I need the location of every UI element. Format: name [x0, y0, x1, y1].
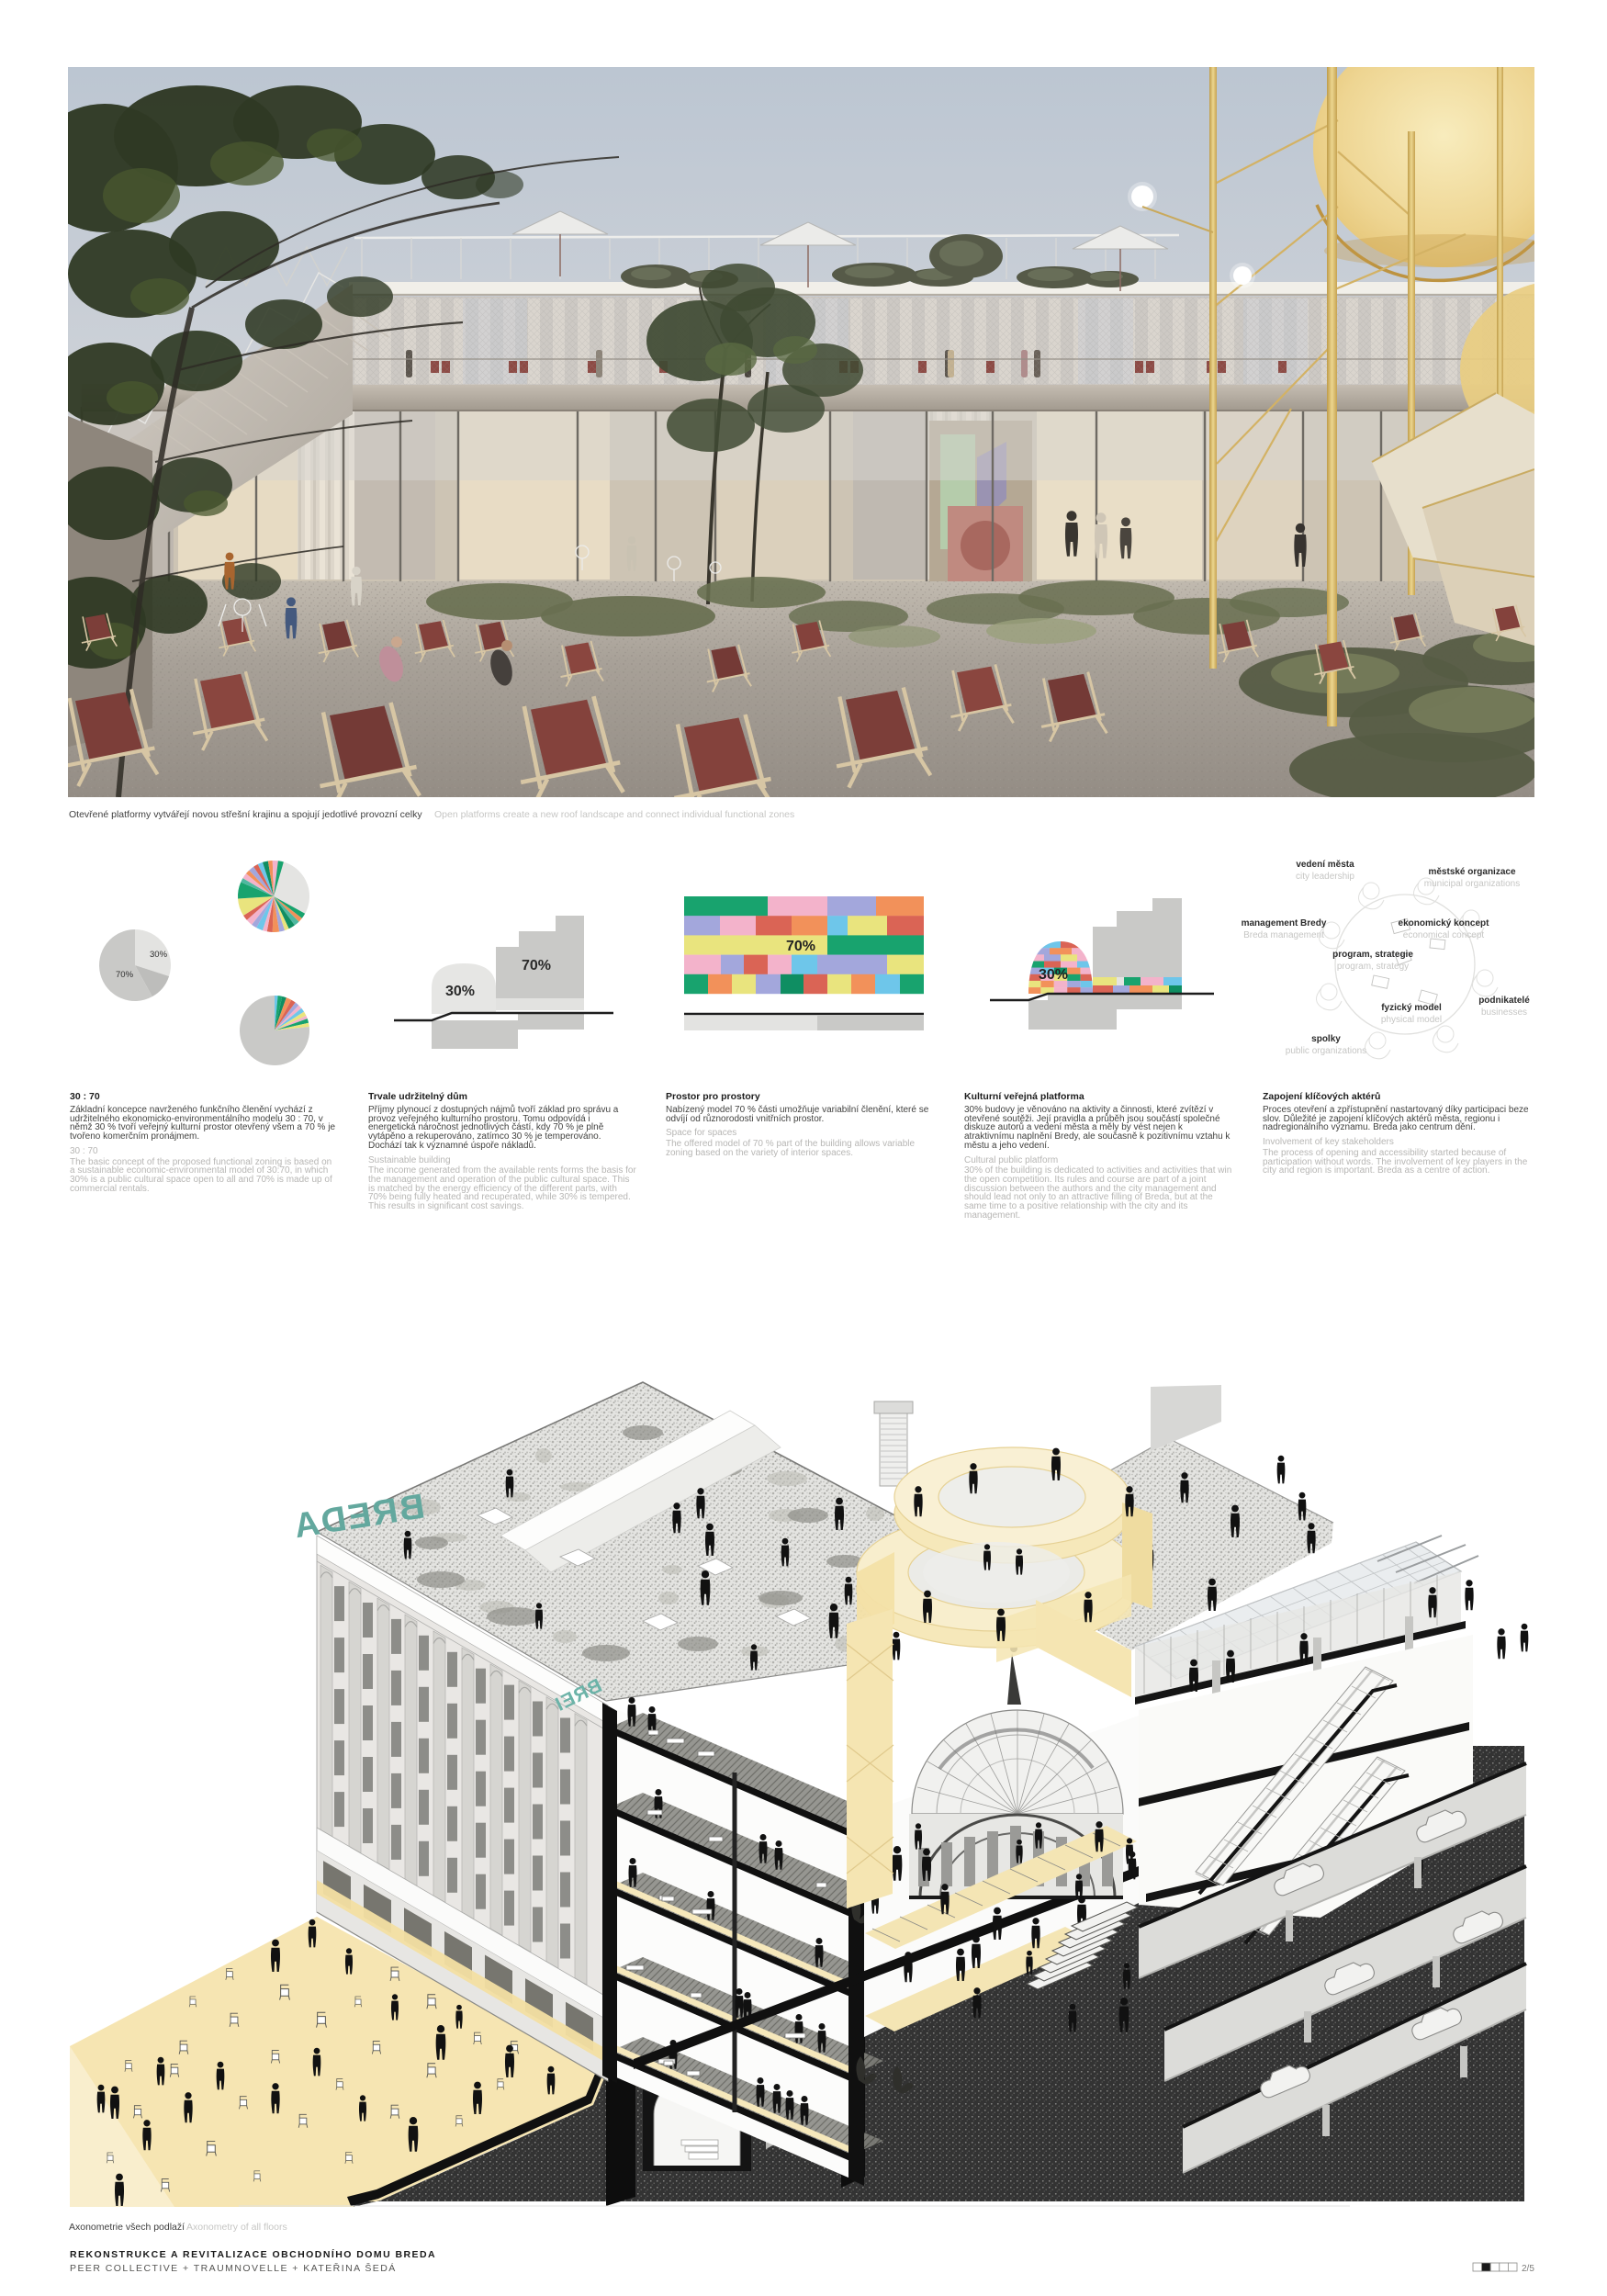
svg-text:podnikatelé: podnikatelé — [1478, 996, 1530, 1006]
svg-text:program, strategy: program, strategy — [1337, 962, 1409, 972]
svg-text:30%: 30% — [445, 984, 475, 999]
svg-text:70%: 70% — [522, 958, 551, 974]
svg-text:Axonometry of all floors: Axonometry of all floors — [186, 2222, 287, 2233]
svg-text:economical concept: economical concept — [1403, 930, 1485, 940]
svg-text:30%: 30% — [150, 950, 168, 960]
svg-text:REKONSTRUKCE A REVITALIZACE OB: REKONSTRUKCE A REVITALIZACE OBCHODNÍHO D… — [70, 2248, 436, 2260]
svg-text:physical model: physical model — [1381, 1015, 1442, 1025]
svg-text:70%: 70% — [116, 970, 134, 980]
svg-text:PEER COLLECTIVE + TRAUMNOVELLE: PEER COLLECTIVE + TRAUMNOVELLE + KATEŘIN… — [70, 2262, 397, 2274]
svg-text:management Bredy: management Bredy — [1242, 918, 1327, 929]
svg-text:city leadership: city leadership — [1296, 872, 1354, 882]
svg-text:30%: 30% — [1039, 967, 1068, 983]
svg-text:vedení města: vedení města — [1296, 860, 1354, 870]
svg-text:2/5: 2/5 — [1522, 2264, 1534, 2274]
svg-text:spolky: spolky — [1311, 1034, 1341, 1044]
svg-text:ekonomický koncept: ekonomický koncept — [1399, 918, 1490, 929]
svg-text:Otevřené platformy vytvářejí n: Otevřené platformy vytvářejí novou střeš… — [69, 809, 422, 820]
svg-text:fyzický model: fyzický model — [1381, 1003, 1442, 1013]
svg-text:public organizations: public organizations — [1286, 1046, 1366, 1056]
svg-text:70%: 70% — [786, 939, 815, 954]
svg-text:program, strategie: program, strategie — [1332, 950, 1413, 960]
svg-text:Axonometrie všech podlaží: Axonometrie všech podlaží — [69, 2222, 185, 2233]
svg-text:městské organizace: městské organizace — [1428, 867, 1515, 877]
svg-text:municipal organizations: municipal organizations — [1424, 879, 1521, 889]
svg-text:Breda management: Breda management — [1243, 930, 1324, 940]
svg-text:businesses: businesses — [1481, 1007, 1527, 1018]
svg-text:Open platforms create a new ro: Open platforms create a new roof landsca… — [434, 809, 794, 820]
